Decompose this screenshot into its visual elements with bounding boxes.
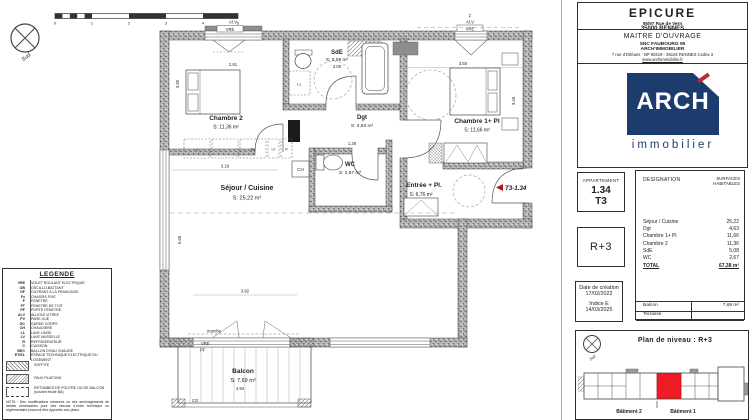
unit-marker: T3-1.34 bbox=[496, 184, 527, 192]
divider bbox=[578, 63, 747, 64]
compass-icon: Sud bbox=[11, 24, 39, 63]
room-area-dgt: S: 4,63 m² bbox=[351, 123, 374, 129]
room-name-sde: SdE bbox=[331, 50, 343, 56]
surface-row-value: 11,66 bbox=[727, 233, 739, 240]
surface-row-value: 5,08 bbox=[729, 248, 739, 255]
pillow bbox=[488, 71, 497, 90]
scale-tick: 4 bbox=[202, 21, 205, 26]
designation-header: DESIGNATION bbox=[643, 177, 680, 183]
legend-rows: VREVOLET ROULANT ELECTRIQUEOBOSCILLO-BAT… bbox=[3, 281, 110, 362]
total-label: TOTAL bbox=[643, 263, 659, 269]
room-area-chambre2: S: 11,36 m² bbox=[213, 125, 239, 131]
toilet-bowl bbox=[324, 155, 343, 170]
window-tag-vre: VRE bbox=[226, 27, 235, 32]
pillow bbox=[488, 93, 497, 112]
surface-row-label: Chambre 2 bbox=[643, 241, 668, 248]
surface-row: SdE5,08 bbox=[636, 248, 744, 255]
legend: LEGENDE VREVOLET ROULANT ELECTRIQUEOBOSC… bbox=[2, 268, 112, 420]
surface-row-label: Dgt bbox=[643, 226, 651, 233]
plan-sheet: Sud 0 1 2 3 4 5 bbox=[0, 0, 750, 420]
total-value: 67,38 m² bbox=[719, 263, 739, 269]
window-tag-f: F bbox=[469, 14, 472, 19]
dim-balcon-width: 4.94 bbox=[236, 386, 245, 391]
apartment-type: T3 bbox=[578, 196, 624, 207]
window-tag-alv: Al.V bbox=[229, 20, 237, 25]
false-ceiling-label: FAUX PLAFOND bbox=[34, 376, 110, 380]
building2-label: Bâtiment 2 bbox=[616, 409, 642, 415]
logo-subtext: immobilier bbox=[621, 139, 725, 151]
room-area-sejour: S: 25,22 m² bbox=[233, 196, 262, 202]
room-name-chambre2: Chambre 2 bbox=[209, 115, 243, 122]
dim-chambre2-width: 2.91 bbox=[229, 62, 238, 67]
pillow bbox=[188, 73, 198, 90]
tag-lave-vaisselle: LV bbox=[272, 148, 277, 152]
tag-vre: VRE bbox=[201, 341, 210, 346]
tag-pf: PF bbox=[200, 348, 206, 353]
tag-marche: marche bbox=[207, 329, 222, 334]
divider bbox=[636, 311, 744, 312]
closet-chambre1 bbox=[444, 143, 487, 163]
legend-label: ESPACE TECHNIQUE ELECTRIQUE DU LOGEMENT bbox=[28, 353, 110, 362]
tag-evier: Ev bbox=[251, 148, 256, 152]
level-plan-compass-icon: Sud bbox=[579, 333, 609, 363]
level-plan-map: Bâtiment 2 Bâtiment 1 bbox=[578, 361, 748, 419]
tag-chaudiere: CH bbox=[297, 167, 304, 172]
room-area-wc: S: 2,67 m² bbox=[339, 170, 362, 176]
tag-lave-linge: LL bbox=[297, 82, 302, 87]
tag-cuisson: c bbox=[196, 148, 198, 152]
date-created-value: 17/02/2022 bbox=[576, 291, 622, 297]
dim-chambre1-depth: 3.46 bbox=[511, 96, 516, 105]
level-plan-box: Plan de niveau : R+3 Sud Bâtiment 2 Bâti… bbox=[575, 330, 749, 420]
tag-refrigerateur: R bbox=[285, 148, 288, 152]
surface-row: Chambre 1+ Pl11,66 bbox=[636, 233, 744, 240]
annex-rows: Balcon 7,69 m² Terrasse bbox=[636, 301, 744, 319]
index-date-value: 14/03/2025 bbox=[576, 307, 622, 313]
level-label: R+3 bbox=[578, 241, 624, 253]
room-name-chambre1: Chambre 1+ Pl bbox=[454, 118, 500, 125]
room-name-sejour: Séjour / Cuisine bbox=[221, 185, 274, 192]
dim-sde-width: 3.00 bbox=[333, 64, 342, 69]
room-name-dgt: Dgt bbox=[357, 115, 367, 121]
surface-row: Séjour / Cuisine25,22 bbox=[636, 219, 744, 226]
surface-row: Chambre 211,36 bbox=[636, 241, 744, 248]
apartment-card: APPARTEMENT 1.34 T3 bbox=[577, 172, 625, 212]
beam-drop-swatch bbox=[6, 387, 29, 397]
duct-box bbox=[393, 42, 418, 55]
balcony: marche VRE PF CG bbox=[170, 321, 313, 407]
apartment-number: 1.34 bbox=[578, 185, 624, 196]
legend-nota: NOTA : Des modifications mineures ou des… bbox=[6, 400, 109, 413]
surface-row: Dgt4,63 bbox=[636, 226, 744, 233]
pillow bbox=[188, 94, 198, 111]
surface-row-value: 25,22 bbox=[726, 219, 739, 226]
annex-value: 7,69 m² bbox=[723, 301, 739, 310]
compass-south-label: Sud bbox=[21, 52, 33, 63]
window-tag-vre: VRE bbox=[466, 26, 475, 31]
project-title: EPICURE bbox=[578, 6, 747, 20]
surface-row: WC2,67 bbox=[636, 255, 744, 262]
owner-heading: MAITRE D'OUVRAGE bbox=[578, 33, 747, 40]
soffit-label: SOFFITE bbox=[34, 363, 110, 367]
room-name-balcon: Balcon bbox=[232, 368, 254, 375]
room-area-entree: S: 6,76 m² bbox=[409, 192, 432, 198]
beam-drop-label: RETOMBES DE POUTRE OU DE BALCON (suivant… bbox=[34, 386, 110, 394]
surface-row-label: WC bbox=[643, 255, 651, 262]
dim-wc-width: 1.26 bbox=[348, 141, 357, 146]
room-area-chambre1: S: 11,66 m² bbox=[464, 128, 490, 134]
room-area-balcon: S: 7,69 m² bbox=[230, 378, 256, 384]
scale-tick: 1 bbox=[91, 21, 94, 26]
surface-row-value: 4,63 bbox=[729, 226, 739, 233]
dim-sejour-bottom: 3.82 bbox=[241, 289, 250, 294]
dim-chambre2-depth: 3.90 bbox=[175, 79, 180, 88]
surface-row-label: Chambre 1+ Pl bbox=[643, 233, 677, 240]
unit-ref-label: T3-1.34 bbox=[505, 185, 527, 192]
surfaces-header: SURFACES HABITABLES bbox=[698, 176, 740, 187]
annex-row-balcon: Balcon 7,69 m² bbox=[636, 301, 744, 310]
surface-table: DESIGNATION SURFACES HABITABLES Séjour /… bbox=[635, 170, 745, 320]
surface-row-label: SdE bbox=[643, 248, 652, 255]
soffit-swatch bbox=[6, 361, 29, 371]
level-card: R+3 bbox=[577, 227, 625, 267]
surface-row-value: 2,67 bbox=[729, 255, 739, 262]
tech-space-box bbox=[429, 143, 442, 163]
dim-sejour-depth: 6.68 bbox=[177, 235, 182, 244]
washbasin bbox=[295, 54, 311, 69]
nightstand bbox=[502, 53, 518, 65]
surface-rows: Séjour / Cuisine25,22Dgt4,63Chambre 1+ P… bbox=[636, 219, 744, 262]
level-plan-title: Plan de niveau : R+3 bbox=[606, 337, 744, 344]
surface-total-row: TOTAL 67,38 m² bbox=[636, 263, 744, 269]
surface-row-value: 11,36 bbox=[727, 241, 739, 248]
nightstand bbox=[502, 118, 518, 130]
owner-website: www.archimmobilier.fr bbox=[578, 57, 747, 62]
scale-tick: 3 bbox=[165, 21, 168, 26]
scale-tick: 5 bbox=[237, 21, 240, 26]
date-card: Date de création 17/02/2022 Indice E 14/… bbox=[575, 281, 623, 322]
annex-label: Balcon bbox=[643, 301, 658, 310]
room-name-wc: WC bbox=[345, 162, 356, 168]
surface-row-label: Séjour / Cuisine bbox=[643, 219, 678, 226]
logo-text: ARCH bbox=[627, 88, 719, 116]
dim-chambre1-width: 3.50 bbox=[459, 61, 468, 66]
legend-title: LEGENDE bbox=[3, 271, 111, 278]
divider bbox=[691, 301, 692, 320]
building1-label: Bâtiment 1 bbox=[670, 409, 696, 415]
unit-arrow-icon bbox=[496, 184, 503, 191]
apartment-heading: APPARTEMENT bbox=[578, 178, 624, 183]
scale-tick: 2 bbox=[128, 21, 131, 26]
scale-tick: 0 bbox=[54, 21, 57, 26]
window-tag-alv: Al.V bbox=[466, 20, 474, 25]
scale-bar: 0 1 2 3 4 5 bbox=[54, 14, 240, 26]
tag-cg: CG bbox=[192, 398, 198, 403]
toilet-tank bbox=[316, 155, 324, 170]
room-name-entree: Entrée + Pl. bbox=[406, 182, 442, 189]
sheet-divider bbox=[561, 0, 562, 420]
highlighted-unit bbox=[657, 374, 681, 399]
false-ceiling-swatch bbox=[6, 374, 29, 384]
divider bbox=[636, 320, 744, 321]
room-area-sde: S: 5,08 m² bbox=[326, 57, 349, 63]
dim-sejour-width: 3.19 bbox=[221, 164, 230, 169]
